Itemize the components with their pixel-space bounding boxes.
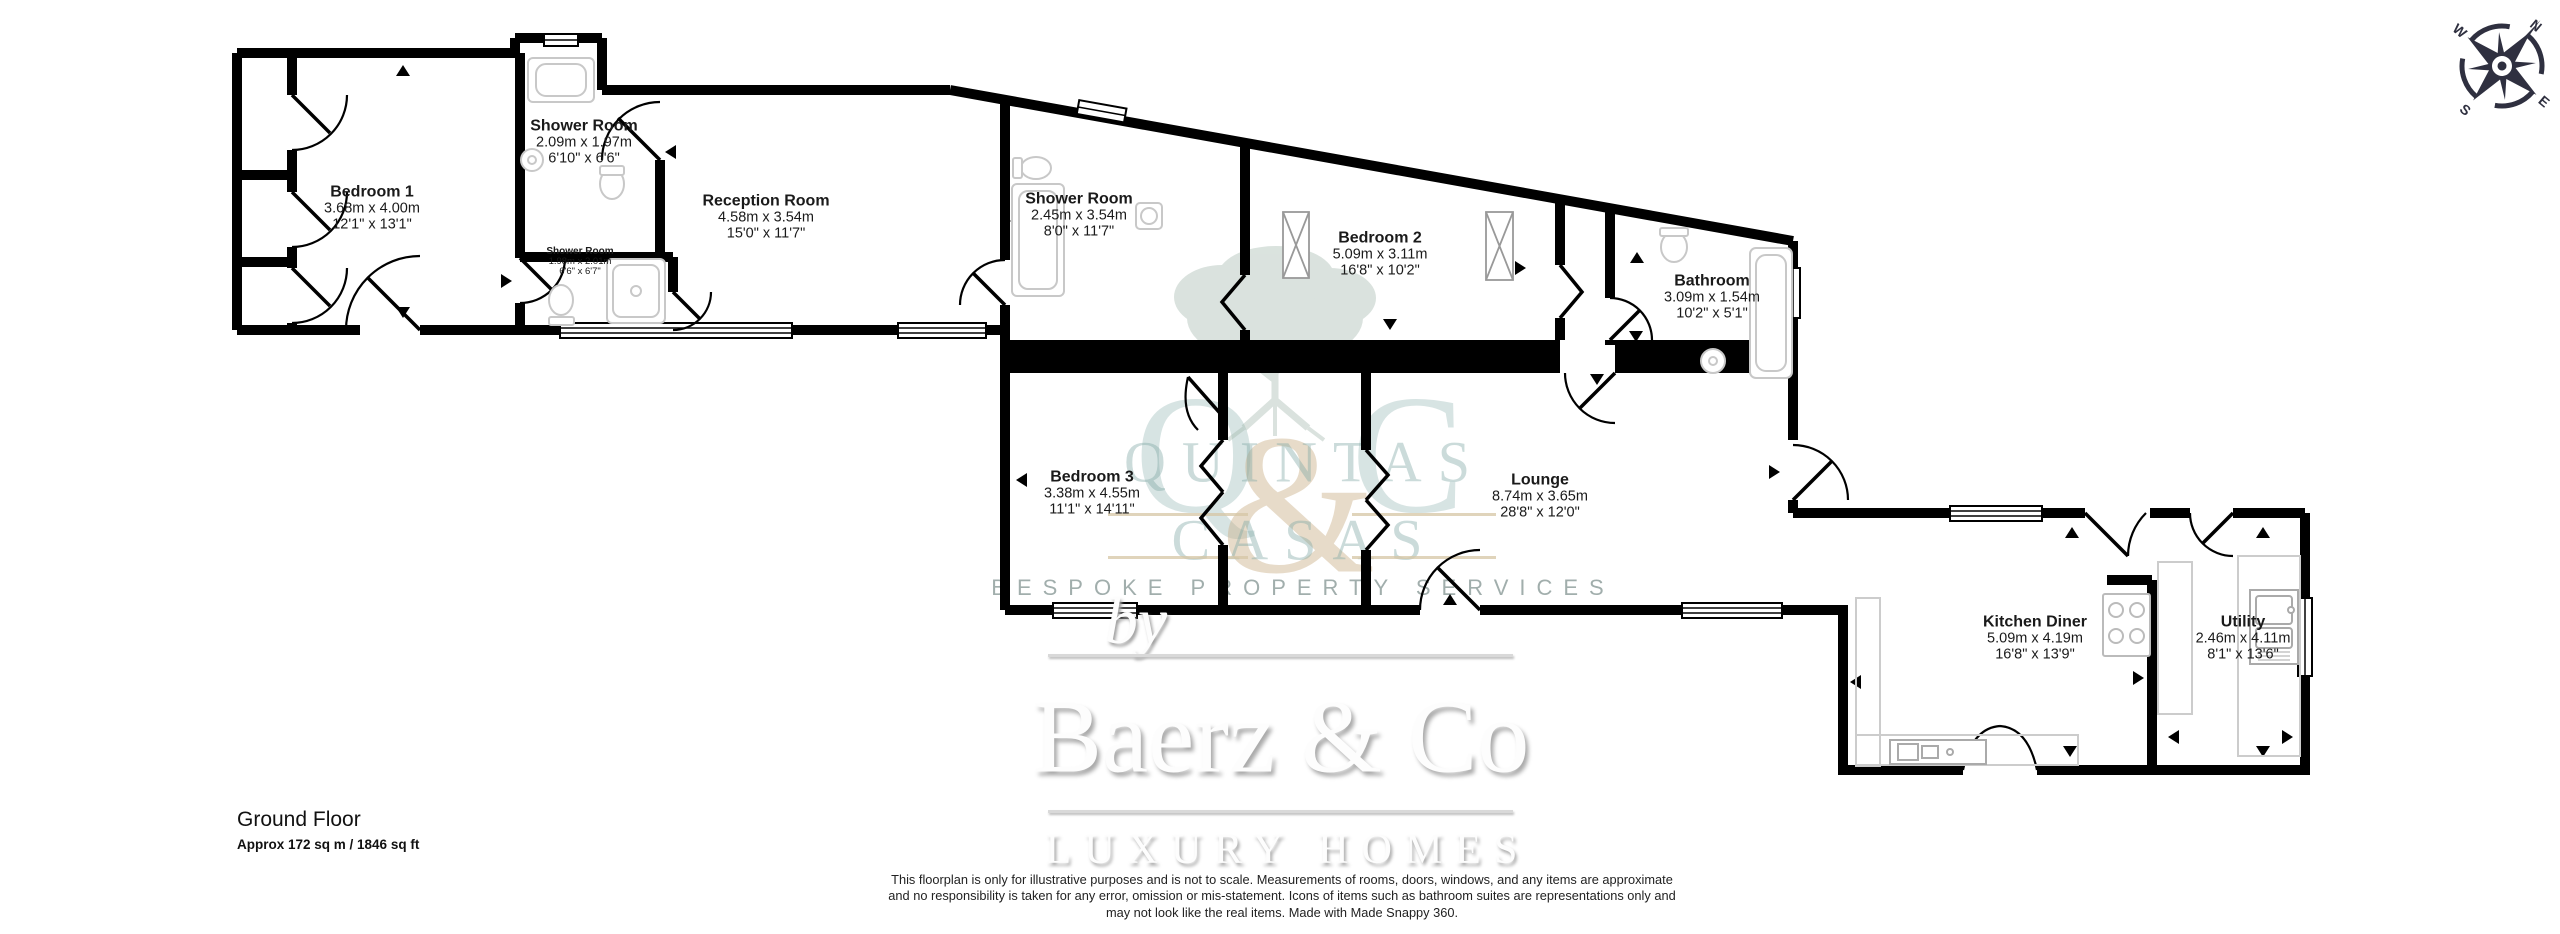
floor-label: Ground Floor — [237, 808, 419, 832]
footer: Ground Floor Approx 172 sq m / 1846 sq f… — [237, 808, 419, 852]
room-label-lounge: Lounge 8.74m x 3.65m 28'8" x 12'0" — [1492, 471, 1588, 520]
watermark-brand-rule — [1048, 810, 1513, 813]
room-label-shower-room-2: Shower Room 1.98m x 2.01m 6'6" x 6'7" — [546, 246, 613, 278]
room-metric: 8.74m x 3.65m — [1492, 489, 1588, 505]
room-label-utility: Utility 2.46m x 4.11m 8'1" x 13'6" — [2196, 613, 2291, 662]
disclaimer: This floorplan is only for illustrative … — [702, 872, 1862, 921]
room-name: Utility — [2196, 613, 2291, 631]
room-metric: 5.09m x 3.11m — [1333, 247, 1428, 263]
room-name: Shower Room — [530, 117, 638, 135]
room-imperial: 16'8" x 10'2" — [1333, 263, 1428, 279]
room-imperial: 12'1" x 13'1" — [324, 217, 420, 233]
room-name: Bedroom 1 — [324, 183, 420, 201]
disclaimer-line: and no responsibility is taken for any e… — [888, 888, 1675, 903]
room-imperial: 11'1" x 14'11" — [1044, 502, 1140, 518]
floorplan-page: Q C & QUINTAS CASAS BESPOKE PROPERTY SER… — [0, 0, 2560, 934]
watermark-brand: Baerz & Co — [1033, 678, 1530, 797]
room-label-bedroom-1: Bedroom 1 3.68m x 4.00m 12'1" x 13'1" — [324, 183, 420, 232]
room-metric: 5.09m x 4.19m — [1983, 631, 2087, 647]
room-imperial: 15'0" x 11'7" — [702, 226, 829, 242]
watermark-brand-tagline: LUXURY HOMES — [1046, 826, 1531, 874]
watermark-by: by — [1105, 584, 1167, 660]
area-label: Approx 172 sq m / 1846 sq ft — [237, 837, 419, 852]
room-metric: 3.68m x 4.00m — [324, 201, 420, 217]
room-metric: 2.09m x 1.97m — [530, 135, 638, 151]
room-label-reception-room: Reception Room 4.58m x 3.54m 15'0" x 11'… — [702, 192, 829, 241]
room-imperial: 6'10" x 6'6" — [530, 151, 638, 167]
labels-layer: Bedroom 1 3.68m x 4.00m 12'1" x 13'1" Sh… — [0, 0, 2560, 934]
room-label-kitchen-diner: Kitchen Diner 5.09m x 4.19m 16'8" x 13'9… — [1983, 613, 2087, 662]
room-label-bedroom-3: Bedroom 3 3.38m x 4.55m 11'1" x 14'11" — [1044, 468, 1140, 517]
room-imperial: 10'2" x 5'1" — [1664, 306, 1760, 322]
room-imperial: 8'1" x 13'6" — [2196, 647, 2291, 663]
disclaimer-line: may not look like the real items. Made w… — [1106, 905, 1458, 920]
room-imperial: 8'0" x 11'7" — [1025, 224, 1133, 240]
room-name: Lounge — [1492, 471, 1588, 489]
room-name: Shower Room — [1025, 190, 1133, 208]
room-label-bedroom-2: Bedroom 2 5.09m x 3.11m 16'8" x 10'2" — [1333, 229, 1428, 278]
room-name: Bedroom 3 — [1044, 468, 1140, 486]
room-label-bathroom: Bathroom 3.09m x 1.54m 10'2" x 5'1" — [1664, 272, 1760, 321]
disclaimer-line: This floorplan is only for illustrative … — [891, 872, 1673, 887]
room-label-shower-room-1: Shower Room 2.09m x 1.97m 6'10" x 6'6" — [530, 117, 638, 166]
room-metric: 2.45m x 3.54m — [1025, 208, 1133, 224]
room-imperial: 6'6" x 6'7" — [546, 268, 613, 278]
room-metric: 4.58m x 3.54m — [702, 210, 829, 226]
room-metric: 3.09m x 1.54m — [1664, 290, 1760, 306]
watermark-brand-rule — [1048, 654, 1513, 657]
room-label-shower-room-3: Shower Room 2.45m x 3.54m 8'0" x 11'7" — [1025, 190, 1133, 239]
room-name: Bedroom 2 — [1333, 229, 1428, 247]
room-name: Kitchen Diner — [1983, 613, 2087, 631]
room-metric: 2.46m x 4.11m — [2196, 631, 2291, 647]
room-name: Reception Room — [702, 192, 829, 210]
room-name: Bathroom — [1664, 272, 1760, 290]
room-imperial: 16'8" x 13'9" — [1983, 647, 2087, 663]
room-metric: 3.38m x 4.55m — [1044, 486, 1140, 502]
room-imperial: 28'8" x 12'0" — [1492, 505, 1588, 521]
